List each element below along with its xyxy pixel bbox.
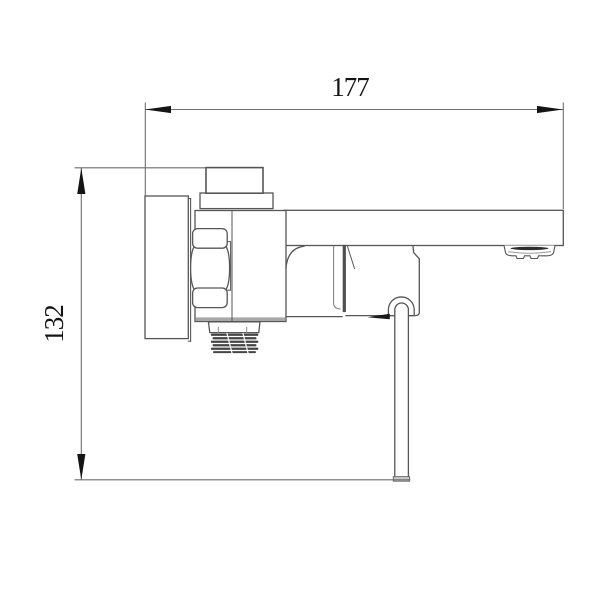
cartridge-flange <box>200 193 273 209</box>
hex-nut-middle-facet <box>191 245 230 290</box>
pointer-mark-icon <box>368 314 390 320</box>
aerator-slot <box>511 247 549 250</box>
arrowhead-right-icon <box>537 106 563 113</box>
faucet-dimension-drawing: 177 132 <box>0 0 600 600</box>
outlet-collar <box>208 322 260 333</box>
arrowhead-left-icon <box>145 106 171 113</box>
arrowhead-up-icon <box>77 168 85 194</box>
handle-end-cap <box>393 477 409 482</box>
handle-lever <box>395 303 409 477</box>
hex-nut-top-facet <box>193 229 228 249</box>
outlet-threads <box>211 334 259 354</box>
arrowhead-down-icon <box>77 454 85 480</box>
housing-fillet <box>286 246 304 268</box>
wall-plate <box>145 196 188 339</box>
technical-drawing-page: 177 132 <box>0 0 600 600</box>
cartridge-cap <box>206 168 263 194</box>
height-dimension-label: 132 <box>39 305 69 343</box>
hex-nut-bottom-facet <box>193 288 228 308</box>
faucet-figure <box>145 168 563 482</box>
housing-chamfer-line <box>348 247 355 269</box>
body-bottom-shade <box>196 317 286 321</box>
spout <box>284 210 563 245</box>
housing-inner-edge <box>334 247 340 310</box>
width-dimension-label: 177 <box>331 72 369 102</box>
